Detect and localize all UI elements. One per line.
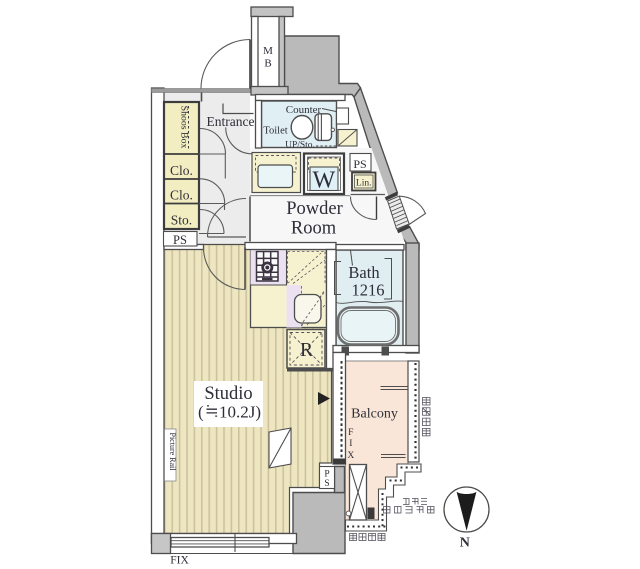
svg-text:N: N <box>460 536 470 551</box>
svg-text:X: X <box>347 451 354 461</box>
svg-text:UP/Sto.: UP/Sto. <box>285 141 315 151</box>
svg-text:P: P <box>324 470 329 480</box>
svg-text:Bath: Bath <box>348 263 380 282</box>
svg-text:R: R <box>300 340 313 361</box>
svg-text:PS: PS <box>353 157 366 171</box>
svg-text:Entrance: Entrance <box>207 114 255 129</box>
svg-text:10.2J): 10.2J) <box>219 403 261 422</box>
svg-text:M: M <box>263 45 273 57</box>
svg-text:(: ( <box>198 403 204 422</box>
svg-text:Clo.: Clo. <box>170 163 193 178</box>
svg-text:Room: Room <box>291 219 337 239</box>
svg-text:PS: PS <box>173 233 187 247</box>
svg-text:Lin.: Lin. <box>356 179 372 189</box>
svg-text:W: W <box>312 168 335 194</box>
svg-text:FIX: FIX <box>170 555 189 567</box>
svg-text:1216: 1216 <box>352 281 385 300</box>
svg-text:Sto.: Sto. <box>171 213 192 228</box>
svg-text:Balcony: Balcony <box>351 407 398 422</box>
svg-text:S: S <box>324 479 329 489</box>
svg-text:Counter: Counter <box>286 104 322 116</box>
svg-text:Shoos Box: Shoos Box <box>179 106 190 149</box>
svg-text:F: F <box>348 428 353 438</box>
svg-text:B: B <box>264 58 271 70</box>
svg-text:Picture Rail: Picture Rail <box>168 433 177 472</box>
svg-text:I: I <box>349 439 352 449</box>
svg-text:Studio: Studio <box>204 384 252 404</box>
svg-text:Powder: Powder <box>286 199 343 219</box>
svg-text:Clo.: Clo. <box>170 188 193 203</box>
svg-text:Toilet: Toilet <box>263 126 287 137</box>
